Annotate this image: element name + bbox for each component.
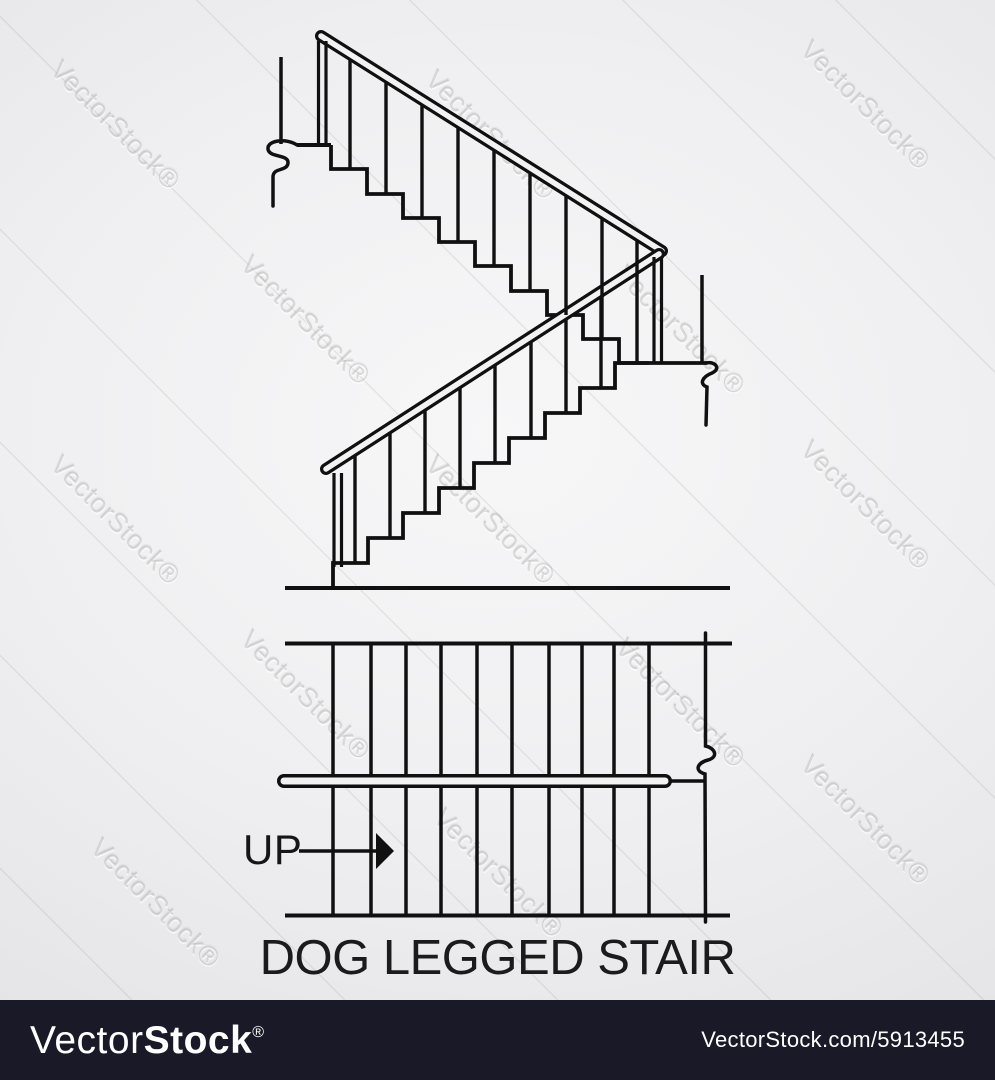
lower-flight-steps <box>333 363 649 588</box>
break-line-landing <box>702 363 716 425</box>
up-arrow-icon <box>299 833 394 869</box>
elevation-view <box>268 36 730 588</box>
stock-image-canvas: VectorStock® VectorStock® VectorStock® V… <box>0 0 995 1080</box>
registered-mark-icon: ® <box>252 1024 264 1041</box>
drawing-title: DOG LEGGED STAIR <box>0 930 995 986</box>
upper-handrail <box>321 36 662 251</box>
up-label: UP <box>243 826 302 874</box>
vectorstock-logo: VectorStock® <box>30 1021 264 1060</box>
newel-posts <box>319 41 662 567</box>
break-line-upper-floor <box>268 141 297 206</box>
plan-right-wall-break-line <box>698 633 715 922</box>
vectorstock-footer-bar: VectorStock® VectorStock.com/5913455 <box>0 1000 995 1080</box>
image-url-text: VectorStock.com/5913455 <box>701 1027 965 1053</box>
lower-handrail <box>326 254 659 469</box>
logo-vector-text: Vector <box>30 1019 144 1062</box>
stair-drawing <box>0 0 995 1080</box>
plan-view <box>284 633 732 922</box>
logo-stock-text: Stock <box>144 1019 253 1062</box>
